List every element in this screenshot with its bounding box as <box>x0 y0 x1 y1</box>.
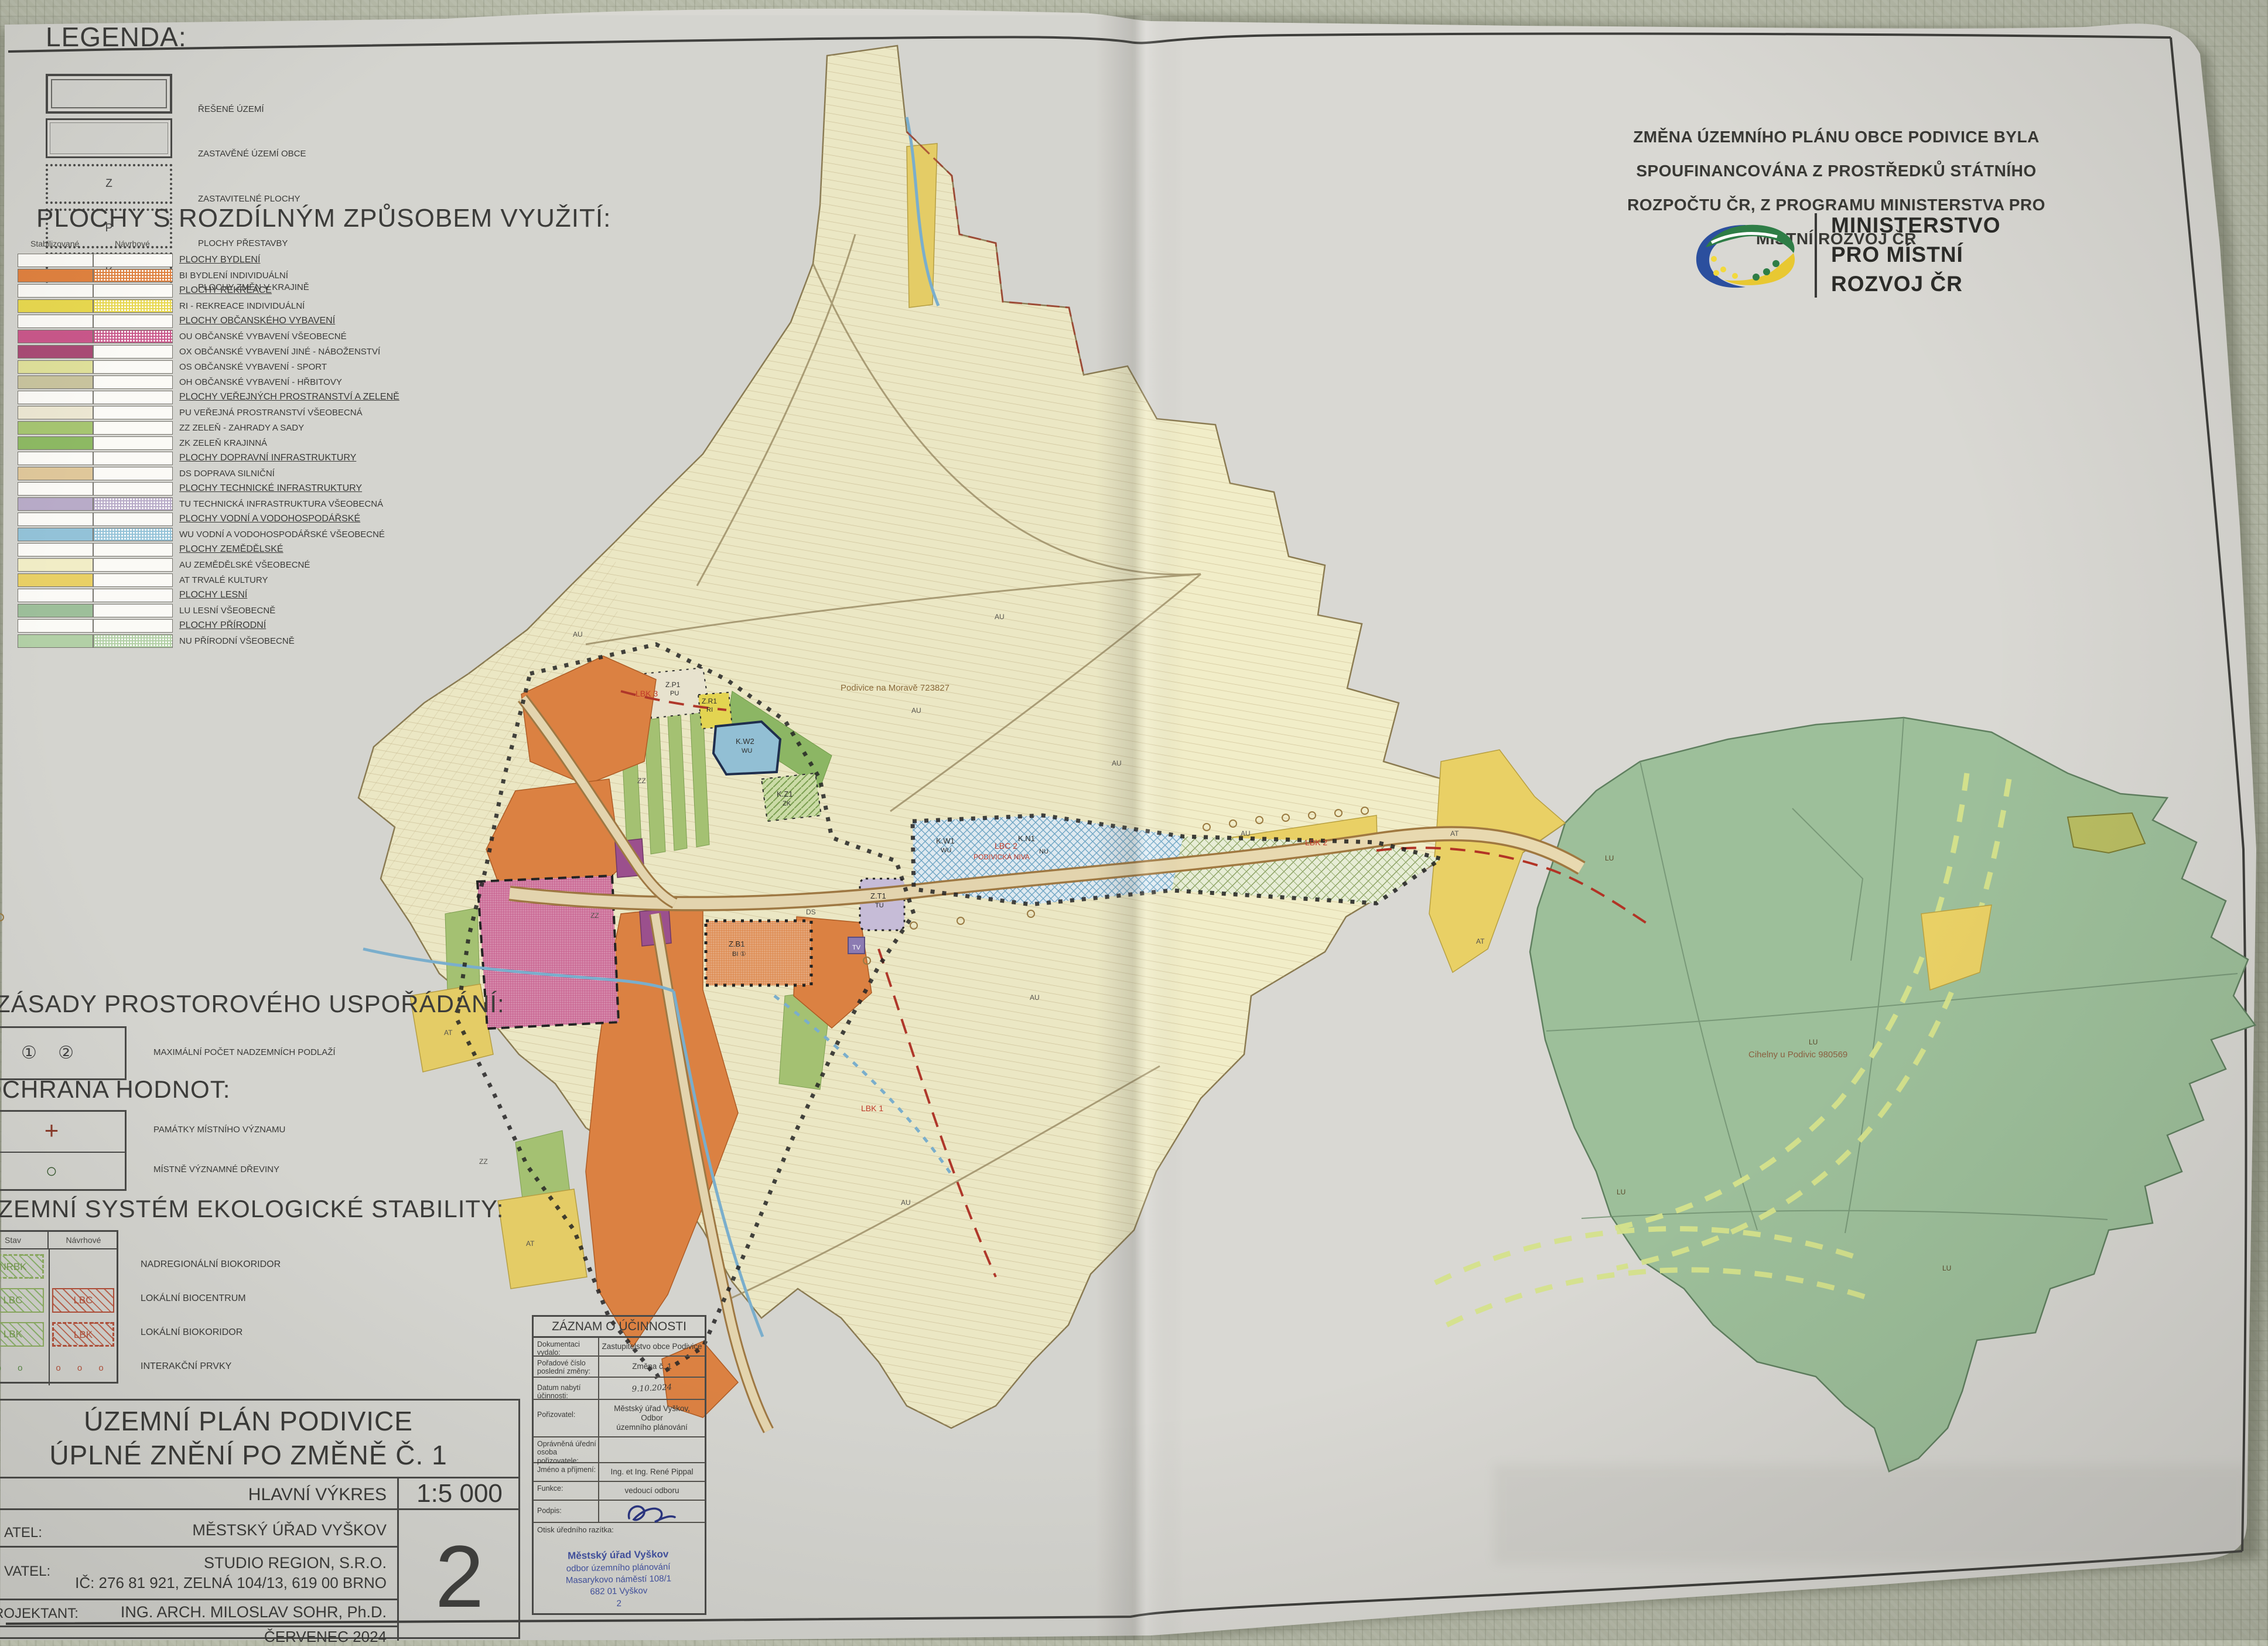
map-label: DS <box>806 908 816 916</box>
uses-col-proposed: Návrhové <box>49 1232 118 1249</box>
contractor-row-label: VATEL: <box>4 1563 50 1580</box>
title-block: ÚZEMNÍ PLÁN PODIVICE ÚPLNÉ ZNĚNÍ PO ZMĚN… <box>0 1399 520 1639</box>
official-stamp: Městský úřad Vyškov odbor územního pláno… <box>539 1548 698 1611</box>
photographed-plan-sheet: LEGENDA: Z P K ŘEŠENÉ ÚZEMÍ ZASTAVĚNÉ ÚZ… <box>0 0 2268 1640</box>
proposed-swatch <box>93 284 173 298</box>
map-label: PODIVICKÁ NIVA <box>974 853 1030 861</box>
map-label: LU <box>1942 1264 1951 1272</box>
forest-olive-patch <box>2068 813 2145 853</box>
drawing-type-label: HLAVNÍ VÝKRES <box>248 1485 387 1505</box>
signature-scribble <box>626 1502 678 1525</box>
map-label: TV <box>852 944 860 951</box>
land-use-row: LU LESNÍ VŠEOBECNĚ <box>18 603 521 619</box>
stabilized-swatch <box>18 345 93 358</box>
stabilized-swatch <box>18 604 93 617</box>
nrbk-swatch: NRBK <box>0 1254 44 1279</box>
divider <box>0 1477 518 1478</box>
proposed-swatch <box>93 467 173 480</box>
uses-label: LOKÁLNÍ BIOKORIDOR <box>141 1327 242 1338</box>
map-label: LU <box>1809 1038 1818 1046</box>
logo-divider <box>1815 213 1817 298</box>
stabilized-swatch <box>18 482 93 496</box>
record-row: Jméno a příjmení: Ing. et Ing. René Pipp… <box>534 1463 705 1482</box>
land-use-row: TU TECHNICKÁ INFRASTRUKTURA VŠEOBECNÁ <box>18 497 521 512</box>
legend-label: ZASTAVITELNÉ PLOCHY <box>198 194 300 204</box>
stabilized-swatch <box>18 315 93 328</box>
land-use-table: PLOCHY BYDLENÍ BI BYDLENÍ INDIVIDUÁLNÍ P… <box>18 253 521 649</box>
ministry-name-line1: MINISTERSTVO <box>1831 213 2001 238</box>
record-label: Funkce: <box>534 1482 599 1500</box>
legend-label: ZASTAVĚNÉ ÚZEMÍ OBCE <box>198 149 306 159</box>
monument-symbol: + <box>0 1112 125 1153</box>
interaction-proposed-symbols: o o o <box>52 1357 114 1381</box>
proposed-swatch <box>93 528 173 541</box>
authority-row-label: ATEL: <box>4 1525 42 1541</box>
record-label: Dokumentaci vydalo: <box>534 1338 599 1355</box>
effectiveness-record-table: ZÁZNAM O ÚČINNOSTI Dokumentaci vydalo: Z… <box>532 1315 706 1615</box>
col-stabilized: Stabilizované <box>30 239 79 248</box>
stabilized-swatch <box>18 573 93 587</box>
divider <box>0 1546 397 1548</box>
stabilized-swatch <box>18 421 93 435</box>
plan-title-line1: ÚZEMNÍ PLÁN PODIVICE <box>0 1405 518 1437</box>
lbk-state-swatch: LBK <box>0 1322 44 1347</box>
map-label: PU <box>670 690 679 697</box>
land-use-row: RI - REKREACE INDIVIDUÁLNÍ <box>18 299 521 314</box>
stabilized-swatch <box>18 513 93 526</box>
land-use-label: PLOCHY TECHNICKÉ INFRASTRUKTURY <box>179 483 362 494</box>
land-use-label: ZK ZELEŇ KRAJINNÁ <box>179 438 267 448</box>
protection-label: PAMÁTKY MÍSTNÍHO VÝZNAMU <box>153 1125 285 1135</box>
stabilized-swatch <box>18 330 93 343</box>
proposed-swatch <box>93 391 173 404</box>
map-label: ZZ <box>590 911 599 920</box>
plan-title-line2: ÚPLNÉ ZNĚNÍ PO ZMĚNĚ Č. 1 <box>0 1439 518 1471</box>
lbc-state-swatch: LBC <box>0 1288 44 1313</box>
uses-label: INTERAKČNÍ PRVKY <box>141 1361 231 1372</box>
lbk-proposed-swatch: LBK <box>52 1322 114 1347</box>
proposed-swatch <box>93 619 173 633</box>
funding-line: ROZPOČTU ČR, Z PROGRAMU MINISTERSTVA PRO <box>1623 196 2050 214</box>
tree-symbol: ○ <box>0 1153 125 1191</box>
contractor-value: STUDIO REGION, S.R.O. <box>204 1554 387 1572</box>
funding-line: SPOUFINANCOVÁNA Z PROSTŘEDKŮ STÁTNÍHO <box>1623 162 2050 180</box>
land-use-row: OS OBČANSKÉ VYBAVENÍ - SPORT <box>18 360 521 375</box>
proposed-swatch <box>93 452 173 465</box>
map-label: AU <box>1030 993 1040 1002</box>
land-use-label: OX OBČANSKÉ VYBAVENÍ JINÉ - NÁBOŽENSTVÍ <box>179 347 380 357</box>
stabilized-swatch <box>18 375 93 389</box>
uses-col-state: Stav <box>0 1232 49 1249</box>
stabilized-swatch <box>18 558 93 572</box>
interaction-state-symbols: o o <box>0 1357 44 1381</box>
map-label: LU <box>1605 854 1614 862</box>
legend-swatch-zastavene-uzemi <box>46 118 172 158</box>
land-use-label: PLOCHY ZEMĚDĚLSKÉ <box>179 544 283 555</box>
proposed-swatch <box>93 254 173 267</box>
land-use-row: PU VEŘEJNÁ PROSTRANSTVÍ VŠEOBECNÁ <box>18 405 521 421</box>
proposed-swatch <box>93 269 173 282</box>
map-label: BI ① <box>732 950 746 958</box>
land-use-label: PLOCHY OBČANSKÉHO VYBAVENÍ <box>179 316 335 326</box>
land-use-row: PLOCHY TECHNICKÉ INFRASTRUKTURY <box>18 481 521 497</box>
proposed-swatch <box>93 345 173 358</box>
protection-box: + ○ <box>0 1110 127 1191</box>
stabilized-swatch <box>18 528 93 541</box>
land-use-row: DS DOPRAVA SILNIČNÍ <box>18 466 521 481</box>
divider <box>0 1625 397 1627</box>
proposed-swatch <box>93 482 173 496</box>
proposed-swatch <box>93 421 173 435</box>
record-label: Jméno a příjmení: <box>534 1463 599 1481</box>
land-use-label: AT TRVALÉ KULTURY <box>179 575 268 585</box>
map-label: Cihelny u Podivic 980569 <box>1748 1050 1847 1060</box>
land-use-label: PLOCHY VODNÍ A VODOHOSPODÁŘSKÉ <box>179 514 360 524</box>
map-label: WU <box>742 747 752 754</box>
ministry-logo-icon <box>1688 216 1803 298</box>
record-value: vedoucí odboru <box>599 1486 705 1495</box>
land-use-row: OH OBČANSKÉ VYBAVENÍ - HŘBITOVY <box>18 375 521 390</box>
protection-label: MÍSTNĚ VÝZNAMNÉ DŘEVINY <box>153 1165 279 1174</box>
stabilized-swatch <box>18 497 93 511</box>
stabilized-swatch <box>18 634 93 648</box>
map-label: Z.T1 <box>870 892 886 900</box>
funding-line: ZMĚNA ÚZEMNÍHO PLÁNU OBCE PODIVICE BYLA <box>1623 128 2050 146</box>
land-use-row: PLOCHY VODNÍ A VODOHOSPODÁŘSKÉ <box>18 512 521 527</box>
map-label: Z.R1 <box>702 697 717 705</box>
proposed-swatch <box>93 299 173 313</box>
land-use-label: BI BYDLENÍ INDIVIDUÁLNÍ <box>179 271 288 281</box>
record-label: Datum nabytí účinnosti: <box>534 1378 599 1399</box>
map-label: WU <box>941 847 951 854</box>
proposed-swatch <box>93 573 173 587</box>
proposed-swatch <box>93 315 173 328</box>
land-use-label: OH OBČANSKÉ VYBAVENÍ - HŘBITOVY <box>179 377 342 387</box>
uses-title: ÚZEMNÍ SYSTÉM EKOLOGICKÉ STABILITY: <box>0 1195 504 1223</box>
land-use-row: OX OBČANSKÉ VYBAVENÍ JINÉ - NÁBOŽENSTVÍ <box>18 344 521 360</box>
land-use-label: PLOCHY PŘÍRODNÍ <box>179 620 266 631</box>
max-floors-symbol: ① ② <box>0 1026 127 1080</box>
stabilized-swatch <box>18 589 93 602</box>
uses-label: LOKÁLNÍ BIOCENTRUM <box>141 1293 246 1304</box>
land-use-row: AT TRVALÉ KULTURY <box>18 573 521 588</box>
legend-label: ŘEŠENÉ ÚZEMÍ <box>198 104 264 114</box>
land-use-row: PLOCHY LESNÍ <box>18 588 521 603</box>
land-use-row: AU ZEMĚDĚLSKÉ VŠEOBECNÉ <box>18 558 521 573</box>
stabilized-swatch <box>18 360 93 374</box>
land-use-row: WU VODNÍ A VODOHOSPODÁŘSKÉ VŠEOBECNÉ <box>18 527 521 542</box>
map-label: TU <box>875 902 884 909</box>
land-use-label: RI - REKREACE INDIVIDUÁLNÍ <box>179 301 305 311</box>
map-label: AT <box>1450 829 1459 838</box>
land-use-label: WU VODNÍ A VODOHOSPODÁŘSKÉ VŠEOBECNÉ <box>179 530 385 539</box>
proposed-swatch <box>93 360 173 374</box>
land-use-row: PLOCHY PŘÍRODNÍ <box>18 619 521 634</box>
land-use-label: PLOCHY LESNÍ <box>179 590 247 600</box>
record-row: Oprávněná úřední osoba pořizovatele: <box>534 1437 705 1463</box>
max-floors-label: MAXIMÁLNÍ POČET NADZEMNÍCH PODLAŽÍ <box>153 1047 336 1057</box>
map-label: AU <box>995 613 1005 621</box>
record-row: Datum nabytí účinnosti: 9.10.2024 <box>534 1378 705 1400</box>
record-value: Změna č. 1 <box>599 1362 705 1371</box>
map-label: AU <box>1241 829 1251 838</box>
map-label: LBK 3 <box>636 689 658 698</box>
stamp-area: Otisk úředního razítka: Městský úřad Vyš… <box>534 1523 705 1626</box>
divider <box>0 1599 397 1600</box>
principles-title: ZÁSADY PROSTOROVÉHO USPOŘÁDÁNÍ: <box>0 990 505 1018</box>
land-use-label: PU VEŘEJNÁ PROSTRANSTVÍ VŠEOBECNÁ <box>179 408 363 418</box>
map-label: ZZ <box>637 777 646 785</box>
map-label: RI <box>706 706 713 713</box>
record-value: Zastupitelstvo obce Podivice <box>599 1342 705 1351</box>
land-use-label: TU TECHNICKÁ INFRASTRUKTURA VŠEOBECNÁ <box>179 499 383 509</box>
land-use-label: NU PŘÍRODNÍ VŠEOBECNĚ <box>179 636 295 646</box>
record-row: Podpis: <box>534 1501 705 1523</box>
record-row: Dokumentaci vydalo: Zastupitelstvo obce … <box>534 1338 705 1357</box>
legend-label: PLOCHY PŘESTAVBY <box>198 238 288 248</box>
stabilized-swatch <box>18 436 93 450</box>
map-label: Z.P1 <box>665 681 680 689</box>
land-use-row: BI BYDLENÍ INDIVIDUÁLNÍ <box>18 268 521 284</box>
divider <box>0 1508 518 1510</box>
stabilized-swatch <box>18 543 93 556</box>
protection-title: OCHRANA HODNOT: <box>0 1075 230 1104</box>
map-label: K.N1 <box>1018 834 1035 843</box>
stabilized-swatch <box>18 299 93 313</box>
map-label: K.Z1 <box>777 790 793 798</box>
map-label: LBC 2 <box>995 841 1017 851</box>
proposed-swatch <box>93 604 173 617</box>
land-use-row: PLOCHY OBČANSKÉHO VYBAVENÍ <box>18 314 521 329</box>
map-label: AT <box>444 1029 452 1037</box>
record-value: Městský úřad Vyškov, Odbor územního plán… <box>599 1404 705 1433</box>
sheet-number: 2 <box>397 1512 522 1641</box>
map-label: LBK 2 <box>1305 838 1327 847</box>
land-use-row: PLOCHY VEŘEJNÝCH PROSTRANSTVÍ A ZELENĚ <box>18 390 521 405</box>
proposed-swatch <box>93 589 173 602</box>
map-label: LBK 1 <box>861 1104 883 1113</box>
land-use-label: DS DOPRAVA SILNIČNÍ <box>179 469 275 479</box>
land-use-label: OS OBČANSKÉ VYBAVENÍ - SPORT <box>179 362 327 372</box>
uses-label: NADREGIONÁLNÍ BIOKORIDOR <box>141 1259 281 1270</box>
map-label: AU <box>911 706 921 715</box>
map-label: LU <box>1617 1188 1625 1196</box>
map-label: AU <box>1112 759 1122 767</box>
proposed-swatch <box>93 513 173 526</box>
ministry-name-line3: ROZVOJ ČR <box>1831 272 1963 296</box>
land-use-row: NU PŘÍRODNÍ VŠEOBECNĚ <box>18 634 521 649</box>
record-value-handwritten: 9.10.2024 <box>599 1381 705 1396</box>
map-label: NU <box>1039 848 1048 855</box>
record-label: Pořizovatel: <box>534 1400 599 1436</box>
land-use-row: ZK ZELEŇ KRAJINNÁ <box>18 436 521 451</box>
land-use-label: PLOCHY VEŘEJNÝCH PROSTRANSTVÍ A ZELENĚ <box>179 392 399 402</box>
proposed-swatch <box>93 375 173 389</box>
proposed-swatch <box>93 497 173 511</box>
uses-table: Stav Návrhové NRBK LBC LBC LBK LBK o o o… <box>0 1230 118 1384</box>
map-label: K.W1 <box>936 836 955 845</box>
map-label: AU <box>573 630 583 638</box>
map-label: AU <box>901 1198 911 1207</box>
land-use-row: PLOCHY REKREACE <box>18 284 521 299</box>
land-use-label: OU OBČANSKÉ VYBAVENÍ VŠEOBECNÉ <box>179 332 347 342</box>
legend-swatch-resene-uzemi <box>46 74 172 114</box>
map-label: AT <box>1476 937 1484 945</box>
ministry-name-line2: PRO MÍSTNÍ <box>1831 243 1963 267</box>
land-use-label: PLOCHY REKREACE <box>179 285 272 296</box>
map-label: Podivice na Moravě 723827 <box>841 683 949 693</box>
lbc-proposed-swatch: LBC <box>52 1288 114 1313</box>
record-label: Pořadové číslo poslední změny: <box>534 1357 599 1377</box>
proposed-swatch <box>93 634 173 648</box>
stabilized-swatch <box>18 269 93 282</box>
stabilized-swatch <box>18 284 93 298</box>
stabilized-swatch <box>18 391 93 404</box>
land-use-row: PLOCHY DOPRAVNÍ INFRASTRUKTURY <box>18 451 521 466</box>
land-use-label: AU ZEMĚDĚLSKÉ VŠEOBECNÉ <box>179 560 310 570</box>
land-use-label: LU LESNÍ VŠEOBECNĚ <box>179 606 275 616</box>
stabilized-swatch <box>18 467 93 480</box>
map-label: ZK <box>783 800 791 807</box>
land-use-title: PLOCHY S ROZDÍLNÝM ZPŮSOBEM VYUŽITÍ: <box>36 204 611 233</box>
map-label: Z.B1 <box>729 940 744 948</box>
land-use-row: PLOCHY ZEMĚDĚLSKÉ <box>18 542 521 558</box>
record-row: Pořizovatel: Městský úřad Vyškov, Odbor … <box>534 1400 705 1437</box>
uses-divider <box>49 1249 50 1385</box>
record-title: ZÁZNAM O ÚČINNOSTI <box>534 1317 705 1338</box>
legend-swatch-zastavitelne: Z <box>46 164 172 204</box>
proposed-swatch <box>93 330 173 343</box>
legend-title: LEGENDA: <box>46 21 187 53</box>
land-use-row: PLOCHY BYDLENÍ <box>18 253 521 268</box>
land-use-label: ZZ ZELEŇ - ZAHRADY A SADY <box>179 423 304 433</box>
date-value: ČERVENEC 2024 <box>264 1628 387 1646</box>
scale-value: 1:5 000 <box>397 1479 522 1508</box>
contractor-address: IČ: 276 81 921, ZELNÁ 104/13, 619 00 BRN… <box>75 1574 387 1592</box>
stamp-line: 2 <box>540 1596 698 1611</box>
map-label: K.W2 <box>736 737 754 746</box>
designer-row-label: PROJEKTANT: <box>0 1606 78 1622</box>
proposed-swatch <box>93 543 173 556</box>
authority-value: MĚSTSKÝ ÚŘAD VYŠKOV <box>192 1521 387 1539</box>
land-use-label: PLOCHY DOPRAVNÍ INFRASTRUKTURY <box>179 453 356 463</box>
proposed-swatch <box>93 436 173 450</box>
land-use-row: OU OBČANSKÉ VYBAVENÍ VŠEOBECNÉ <box>18 329 521 344</box>
land-use-label: PLOCHY BYDLENÍ <box>179 255 260 265</box>
record-row: Pořadové číslo poslední změny: Změna č. … <box>534 1357 705 1378</box>
record-label: Podpis: <box>534 1501 599 1522</box>
proposed-swatch <box>93 406 173 419</box>
record-value: Ing. et Ing. René Pippal <box>599 1467 705 1477</box>
stabilized-swatch <box>18 452 93 465</box>
stabilized-swatch <box>18 406 93 419</box>
land-use-row: ZZ ZELEŇ - ZAHRADY A SADY <box>18 421 521 436</box>
proposed-swatch <box>93 558 173 572</box>
stabilized-swatch <box>18 619 93 633</box>
stabilized-swatch <box>18 254 93 267</box>
map-label: AT <box>526 1239 534 1248</box>
stamp-label: Otisk úředního razítka: <box>537 1525 614 1534</box>
col-proposed: Návrhové <box>115 239 150 248</box>
map-label: ZZ <box>479 1157 488 1166</box>
record-label: Oprávněná úřední osoba pořizovatele: <box>534 1437 599 1462</box>
designer-value: ING. ARCH. MILOSLAV SOHR, Ph.D. <box>121 1603 387 1621</box>
